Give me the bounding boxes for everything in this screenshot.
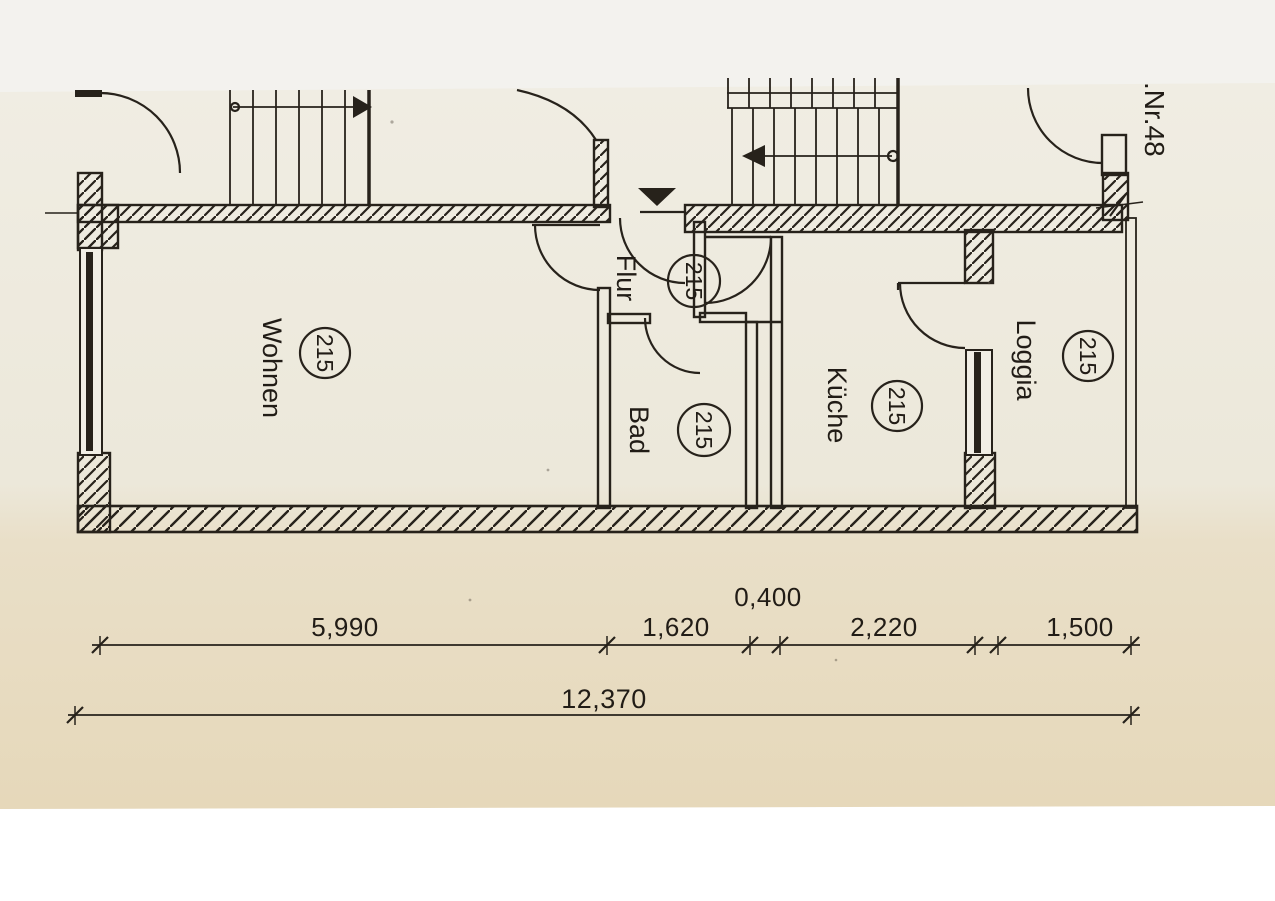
room-label-kueche: Küche (822, 367, 852, 444)
kueche-loggia-wall-upper (965, 230, 993, 283)
room-number-loggia: 215 (1075, 337, 1101, 375)
room-label-bad: Bad (624, 406, 654, 454)
dim-segment-5: 1,500 (1046, 612, 1114, 642)
kueche-loggia-window-glass (974, 352, 981, 453)
dim-segment-3: 0,400 (734, 582, 802, 612)
dim-total: 12,370 (561, 684, 647, 714)
west-wall-upper (78, 173, 102, 250)
room-number-flur: 215 (681, 262, 707, 300)
room-number-kueche: 215 (884, 387, 910, 425)
dim-segment-2: 1,620 (642, 612, 710, 642)
apartment-number-label: .Nr.48 (1139, 82, 1170, 157)
room-label-loggia: Loggia (1011, 319, 1041, 401)
room-label-flur: Flur (611, 255, 641, 302)
bottom-wall (78, 506, 1137, 532)
top-wall-right-segment (685, 205, 1122, 232)
room-label-wohnen: Wohnen (257, 318, 287, 418)
floor-plan-scan: Wohnen 215 Flur 215 Bad 215 Küche 215 Lo… (0, 0, 1275, 901)
dim-segment-1: 5,990 (311, 612, 379, 642)
neighbor-door-leaf (75, 90, 102, 97)
top-margin (0, 0, 1275, 95)
room-number-bad: 215 (691, 411, 717, 449)
kueche-loggia-wall-lower (965, 453, 995, 508)
entrance-wall-stub (594, 140, 608, 207)
top-wall-left-segment (78, 205, 610, 222)
room-number-wohnen: 215 (312, 334, 338, 372)
dim-segment-4: 2,220 (850, 612, 918, 642)
wohnen-window-glass (86, 252, 93, 451)
